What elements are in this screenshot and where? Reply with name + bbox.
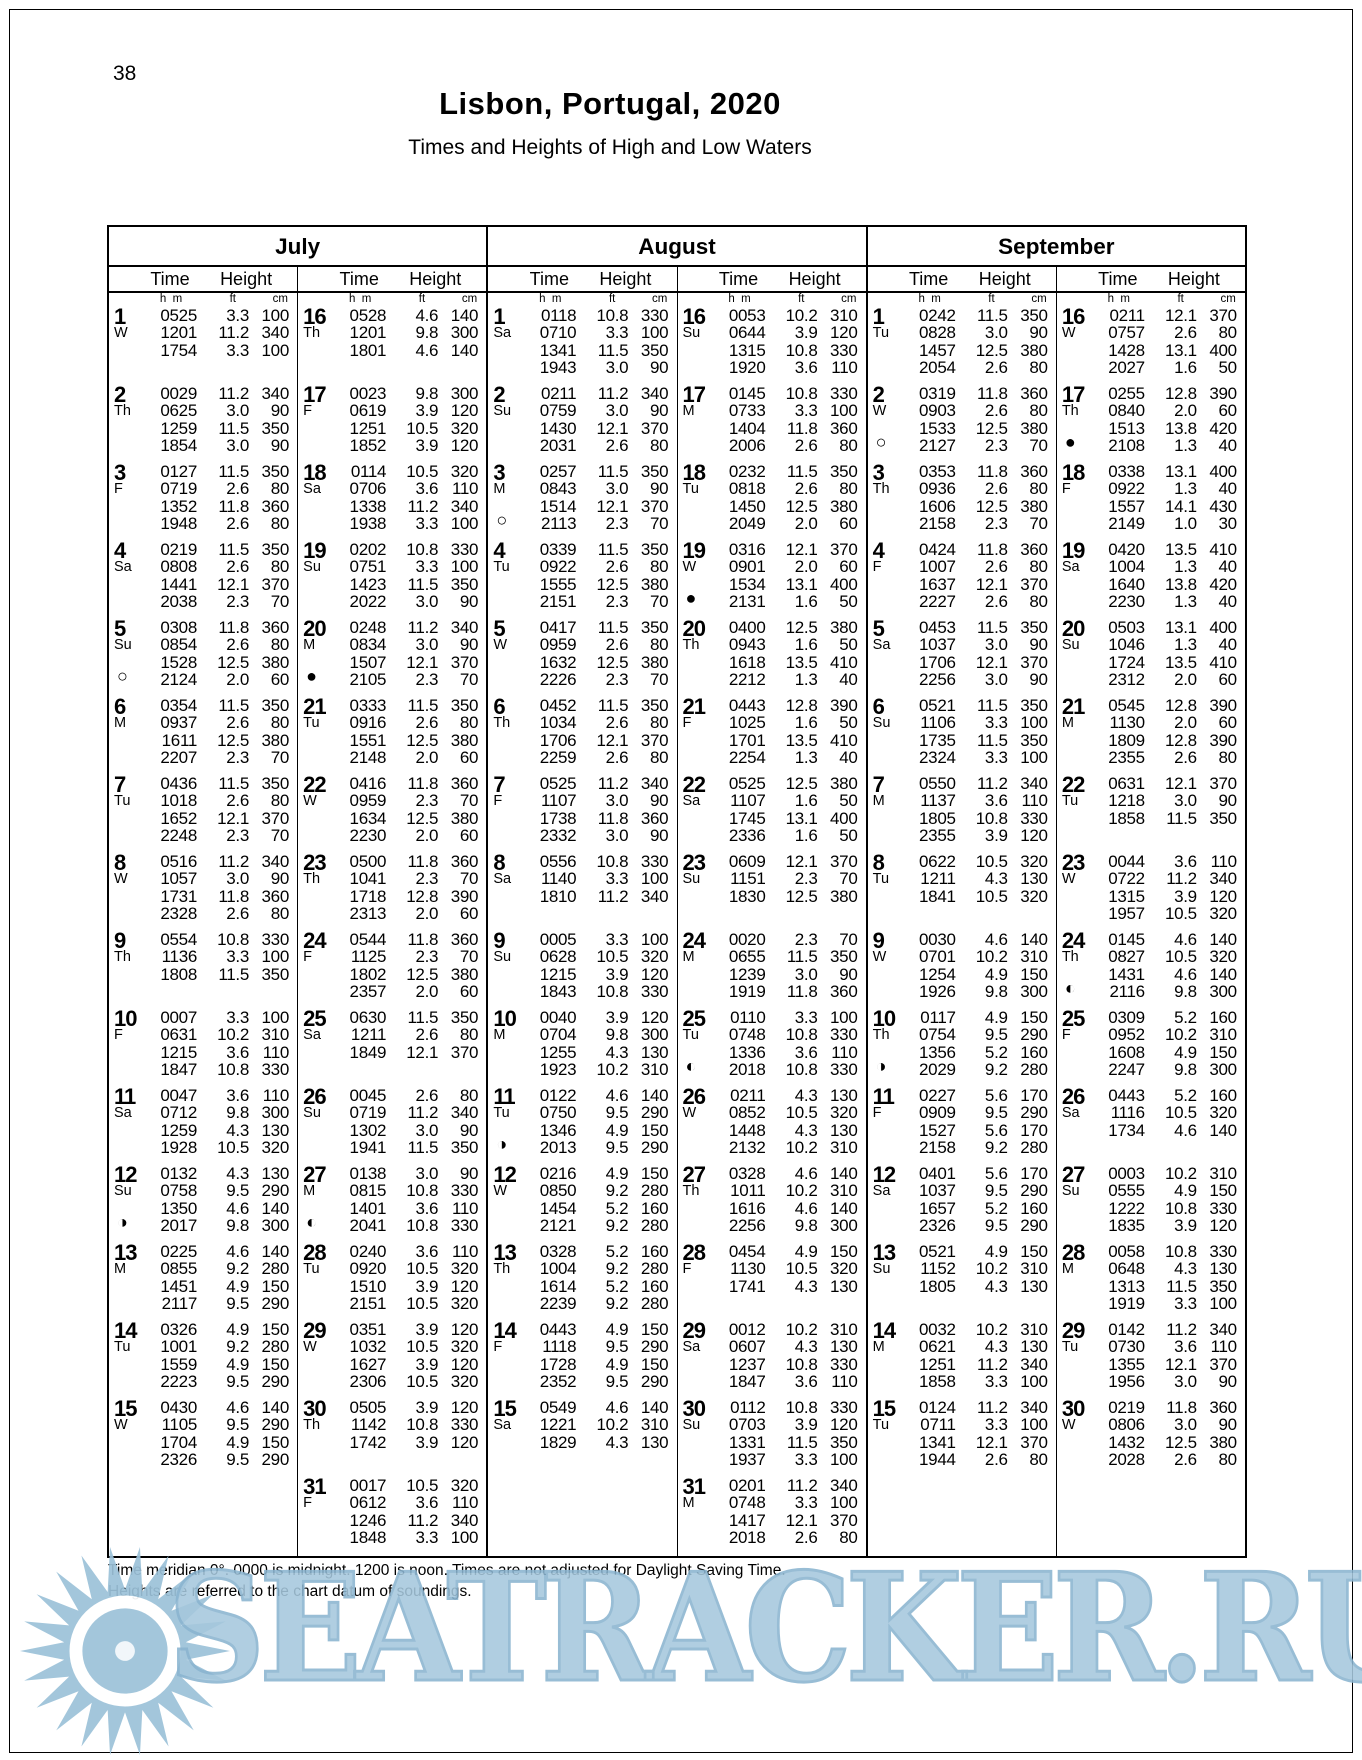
tide-row: 20542.680 [902, 359, 1056, 376]
tide-row: 020111.2340 [712, 1477, 866, 1494]
month-subcolumn: TimeHeighth mftcm1Tu024211.535008283.090… [868, 267, 1056, 1556]
tide-time: 0943 [712, 636, 768, 653]
tide-time: 1302 [332, 1122, 388, 1139]
tide-row: 23122.060 [1091, 671, 1245, 688]
tide-height-cm: 50 [818, 636, 864, 653]
tide-height-ft: 3.0 [578, 359, 628, 376]
tide-time: 0044 [1091, 853, 1147, 870]
tide-row: 09372.680 [143, 714, 297, 731]
tide-height-ft: 12.1 [958, 576, 1008, 593]
tide-time: 1025 [712, 714, 768, 731]
tide-time: 2017 [143, 1217, 199, 1234]
tide-row: 230610.5320 [332, 1373, 486, 1390]
day-number: 21 [303, 697, 333, 716]
tide-time: 2127 [902, 437, 958, 454]
tide-height-cm: 420 [1197, 576, 1243, 593]
tide-time: 1130 [1091, 714, 1147, 731]
day-label: 27M◐ [303, 1165, 333, 1199]
tide-height-ft: 12.1 [578, 732, 628, 749]
tide-height-ft: 11.2 [388, 619, 438, 636]
tide-height-cm: 370 [438, 1044, 484, 1061]
tide-height-ft: 2.0 [388, 983, 438, 1000]
tide-height-cm: 360 [818, 420, 864, 437]
day-number: 29 [1062, 1321, 1092, 1340]
tide-time: 1430 [522, 420, 578, 437]
weekday-label: Su [873, 716, 903, 731]
tide-time: 0719 [332, 1104, 388, 1121]
tide-time: 0619 [332, 402, 388, 419]
tide-height-cm: 300 [438, 385, 484, 402]
tide-height-ft: 12.8 [1147, 697, 1197, 714]
tide-row: 05214.9150 [902, 1243, 1056, 1260]
tide-height-ft: 9.2 [958, 1139, 1008, 1156]
tide-time: 2132 [712, 1139, 768, 1156]
tide-height-cm: 340 [1197, 1321, 1243, 1338]
tide-height-cm: 330 [438, 1217, 484, 1234]
tide-height-cm: 110 [1197, 1338, 1243, 1355]
tide-height-ft: 13.5 [1147, 654, 1197, 671]
day-block: 30W021911.836008063.090143212.538020282.… [1057, 1399, 1245, 1477]
tide-row: 12554.3130 [522, 1044, 676, 1061]
tide-height-ft: 12.1 [578, 498, 628, 515]
tide-row: 07549.5290 [902, 1026, 1056, 1043]
tide-height-cm: 340 [818, 1477, 864, 1494]
tide-height-ft: 4.6 [1147, 931, 1197, 948]
tide-row: 12544.9150 [902, 966, 1056, 983]
tide-height-cm: 80 [438, 714, 484, 731]
tide-row: 22569.8300 [712, 1217, 866, 1234]
tide-height-ft: 4.9 [199, 1278, 249, 1295]
tide-time: 2328 [143, 905, 199, 922]
tide-row: 011810.8330 [522, 307, 676, 324]
day-block: 7M055011.234011373.6110180510.833023553.… [868, 775, 1056, 853]
tide-time: 2357 [332, 983, 388, 1000]
day-number: 7 [114, 775, 144, 794]
tide-height-ft: 9.2 [578, 1182, 628, 1199]
tide-height-ft: 3.3 [199, 307, 249, 324]
tide-time: 1423 [332, 576, 388, 593]
tide-time: 0748 [712, 1026, 768, 1043]
tide-row: 18353.9120 [1091, 1217, 1245, 1234]
tide-height-ft: 2.3 [199, 593, 249, 610]
tide-height-cm: 360 [249, 888, 295, 905]
tide-time: 1346 [522, 1122, 578, 1139]
day-label: 21M [1062, 697, 1092, 731]
tide-time: 1221 [522, 1416, 578, 1433]
tide-height-cm: 50 [818, 792, 864, 809]
tide-row: 12594.3130 [143, 1122, 297, 1139]
day-block: 19Su020210.833007513.3100142311.53502022… [298, 541, 486, 619]
day-number: 12 [114, 1165, 144, 1184]
tide-height-ft: 12.5 [768, 775, 818, 792]
tide-height-cm: 150 [249, 1356, 295, 1373]
tide-height-ft: 4.9 [199, 1321, 249, 1338]
tide-height-cm: 400 [1197, 619, 1243, 636]
tide-row: 161813.5410 [712, 654, 866, 671]
tide-height-ft: 10.5 [388, 420, 438, 437]
tide-row: 23323.090 [522, 827, 676, 844]
day-block: 3M○025711.535008433.090151412.137021132.… [488, 463, 676, 541]
tide-height-cm: 360 [438, 931, 484, 948]
tide-rows: 04435.2160111610.532017344.6140 [1091, 1087, 1245, 1139]
tide-row: 00304.6140 [902, 931, 1056, 948]
day-number: 11 [114, 1087, 144, 1106]
tide-height-ft: 12.5 [768, 619, 818, 636]
tide-height-ft: 12.5 [958, 420, 1008, 437]
tide-row: 21219.2280 [522, 1217, 676, 1234]
tide-time: 0145 [712, 385, 768, 402]
tide-time: 1450 [712, 498, 768, 515]
tide-rows: 00073.3100063110.231012153.6110184710.83… [143, 1009, 297, 1079]
tide-height-cm: 90 [249, 402, 295, 419]
tide-height-cm: 300 [818, 1217, 864, 1234]
tide-row: 09222.680 [522, 558, 676, 575]
tide-height-cm: 80 [1008, 593, 1054, 610]
tide-height-ft: 2.6 [578, 437, 628, 454]
tide-height-cm: 130 [818, 1087, 864, 1104]
day-slots: 1Sa011810.833007103.3100134111.535019433… [488, 307, 676, 1556]
day-number: 30 [1062, 1399, 1092, 1418]
day-label: 29Sa [683, 1321, 713, 1355]
tide-height-cm: 90 [628, 359, 674, 376]
tide-height-cm: 340 [1197, 870, 1243, 887]
tide-height-cm: 100 [249, 948, 295, 965]
day-block: 15Sa05494.6140122110.231018294.3130 [488, 1399, 676, 1477]
tide-row: 074810.8330 [712, 1026, 866, 1043]
day-block: 9W00304.6140070110.231012544.915019269.8… [868, 931, 1056, 1009]
tide-time: 1201 [143, 324, 199, 341]
tide-time: 2131 [712, 593, 768, 610]
tide-height-cm: 100 [249, 342, 295, 359]
day-number: 24 [303, 931, 333, 950]
tide-height-cm: 80 [1008, 359, 1054, 376]
day-label: 16W [1062, 307, 1092, 341]
tide-height-ft: 2.6 [958, 402, 1008, 419]
day-number: 4 [493, 541, 523, 560]
tide-height-cm: 340 [1008, 775, 1054, 792]
tide-time: 0854 [143, 636, 199, 653]
tide-row: 20282.680 [1091, 1451, 1245, 1468]
units-feet: ft [768, 293, 818, 307]
tide-time: 0706 [332, 480, 388, 497]
tide-height-cm: 360 [1197, 1399, 1243, 1416]
tide-height-ft: 2.6 [578, 558, 628, 575]
tide-height-cm: 50 [1197, 359, 1243, 376]
tide-time: 1941 [332, 1139, 388, 1156]
tide-row: 16273.9120 [332, 1356, 486, 1373]
tide-height-ft: 12.1 [1147, 307, 1197, 324]
tide-height-cm: 340 [628, 775, 674, 792]
tide-time: 0922 [522, 558, 578, 575]
tide-time: 1018 [143, 792, 199, 809]
units-row: h mftcm [488, 293, 676, 307]
tide-row: 122110.2310 [522, 1416, 676, 1433]
tide-rows: 02254.614008559.228014514.915021179.5290 [143, 1243, 297, 1313]
tide-height-cm: 320 [438, 420, 484, 437]
units-hours-minutes: h m [332, 293, 388, 307]
tide-height-ft: 12.1 [768, 541, 818, 558]
tide-time: 1352 [143, 498, 199, 515]
day-label: 12Sa [873, 1165, 903, 1199]
units-hours-minutes: h m [522, 293, 578, 307]
month-name: August [488, 227, 865, 267]
tide-row: 060912.1370 [712, 853, 866, 870]
tide-height-cm: 350 [438, 1009, 484, 1026]
tide-row: 04015.6170 [902, 1165, 1056, 1182]
tide-row: 12183.090 [1091, 792, 1245, 809]
tide-height-ft: 1.3 [768, 671, 818, 688]
day-label: 3Th [873, 463, 903, 497]
tide-height-ft: 10.5 [388, 1373, 438, 1390]
footnote: Time meridian 0°. 0000 is midnight. 1200… [108, 1561, 786, 1602]
tide-row: 12019.8300 [332, 324, 486, 341]
tide-height-ft: 4.6 [199, 1399, 249, 1416]
tide-row: 08343.090 [332, 636, 486, 653]
tide-row: 01224.6140 [522, 1087, 676, 1104]
tide-row: 07333.3100 [712, 402, 866, 419]
tide-row: 08509.2280 [522, 1182, 676, 1199]
tide-time: 0545 [1091, 697, 1147, 714]
tide-row: 184110.5320 [902, 888, 1056, 905]
month-body: TimeHeighth mftcm1W05253.3100120111.2340… [109, 267, 486, 1556]
tide-height-ft: 13.1 [1147, 619, 1197, 636]
tide-time: 0936 [902, 480, 958, 497]
tide-time: 0920 [332, 1260, 388, 1277]
tide-height-cm: 280 [249, 1338, 295, 1355]
tide-height-cm: 370 [818, 853, 864, 870]
tide-time: 0353 [902, 463, 958, 480]
tide-height-cm: 350 [249, 697, 295, 714]
tide-height-cm: 330 [249, 1061, 295, 1078]
day-label: 7F [493, 775, 523, 809]
month-subcolumn: TimeHeighth mftcm1Sa011810.833007103.310… [488, 267, 676, 1556]
tide-time: 1011 [712, 1182, 768, 1199]
tide-height-cm: 60 [438, 749, 484, 766]
tide-row: 22239.5290 [143, 1373, 297, 1390]
tide-height-cm: 280 [1008, 1061, 1054, 1078]
tide-time: 1923 [522, 1061, 578, 1078]
tide-height-ft: 4.3 [958, 870, 1008, 887]
tide-height-ft: 10.8 [578, 307, 628, 324]
tide-row: 170113.5410 [712, 732, 866, 749]
tide-height-cm: 290 [249, 1182, 295, 1199]
tide-row: 204110.8330 [332, 1217, 486, 1234]
tide-row: 03513.9120 [332, 1321, 486, 1338]
tide-height-cm: 60 [438, 827, 484, 844]
tide-height-ft: 11.5 [958, 732, 1008, 749]
tide-time: 1701 [712, 732, 768, 749]
tide-height-cm: 130 [818, 1122, 864, 1139]
tide-time: 2223 [143, 1373, 199, 1390]
tide-row: 01174.9150 [902, 1009, 1056, 1026]
tide-row: 03095.2160 [1091, 1009, 1245, 1026]
tide-height-cm: 150 [628, 1321, 674, 1338]
column-headers: TimeHeight [678, 267, 866, 293]
tide-time: 1808 [143, 966, 199, 983]
tide-rows: 040012.538009431.650161813.541022121.340 [712, 619, 866, 689]
day-block: 14M003210.231006214.3130125111.234018583… [868, 1321, 1056, 1399]
tide-time: 1201 [332, 324, 388, 341]
tide-height-cm: 80 [249, 515, 295, 532]
tide-height-cm: 120 [438, 402, 484, 419]
tide-time: 1251 [902, 1356, 958, 1373]
tide-height-cm: 330 [818, 1356, 864, 1373]
tide-height-ft: 11.2 [199, 385, 249, 402]
tide-row: 00053.3100 [522, 931, 676, 948]
tide-row: 10342.680 [522, 714, 676, 731]
height-column-header: Height [960, 269, 1056, 290]
tide-height-ft: 11.8 [958, 463, 1008, 480]
tide-height-ft: 10.5 [388, 1338, 438, 1355]
day-block: 23W00443.6110072211.234013153.9120195710… [1057, 853, 1245, 931]
tide-height-cm: 320 [1008, 853, 1054, 870]
tide-height-ft: 3.9 [388, 1278, 438, 1295]
tide-height-cm: 300 [628, 1026, 674, 1043]
tide-height-ft: 3.9 [578, 1009, 628, 1026]
day-block: 22Sa052512.538011071.650174513.140023361… [678, 775, 866, 853]
tide-height-ft: 2.3 [578, 671, 628, 688]
tide-rows: 05214.9150115210.231018054.3130 [902, 1243, 1056, 1295]
day-number: 23 [683, 853, 713, 872]
tide-height-ft: 10.5 [768, 1104, 818, 1121]
tide-height-ft: 10.8 [388, 1416, 438, 1433]
tide-row: 011210.8330 [712, 1399, 866, 1416]
tide-row: 001210.2310 [712, 1321, 866, 1338]
day-label: 18Sa [303, 463, 333, 497]
weekday-label: Th [114, 950, 144, 965]
day-label: 6M [114, 697, 144, 731]
day-block: 24Th◐01454.6140082710.532014314.61402116… [1057, 931, 1245, 1009]
tide-rows: 050313.140010461.340172413.541023122.060 [1091, 619, 1245, 689]
tide-height-cm: 310 [1008, 1260, 1054, 1277]
tide-height-ft: 3.6 [1147, 853, 1197, 870]
day-label: 14M [873, 1321, 903, 1355]
tide-height-ft: 11.2 [1147, 1321, 1197, 1338]
tide-height-cm: 360 [1008, 463, 1054, 480]
tide-rows: 055610.833011403.3100181011.2340 [522, 853, 676, 905]
tide-height-ft: 10.8 [388, 1182, 438, 1199]
tide-row: 10379.5290 [902, 1182, 1056, 1199]
tide-height-cm: 40 [818, 671, 864, 688]
tide-height-ft: 2.6 [199, 905, 249, 922]
tide-height-ft: 3.6 [768, 1044, 818, 1061]
tide-time: 0005 [522, 931, 578, 948]
month-section-september: SeptemberTimeHeighth mftcm1Tu024211.5350… [866, 227, 1245, 1556]
tide-rows: 04015.617010379.529016575.216023269.5290 [902, 1165, 1056, 1235]
day-block: 15W04304.614011059.529017044.915023269.5… [109, 1399, 297, 1477]
day-number: 25 [1062, 1009, 1092, 1028]
tide-row: 21491.030 [1091, 515, 1245, 532]
tide-height-cm: 380 [628, 576, 674, 593]
day-number: 19 [303, 541, 333, 560]
tide-height-cm: 330 [818, 385, 864, 402]
tide-height-ft: 5.2 [1147, 1087, 1197, 1104]
day-label: 15W [114, 1399, 144, 1433]
tide-row: 20299.2280 [902, 1061, 1056, 1078]
tide-height-cm: 340 [1008, 1399, 1054, 1416]
tide-rows: 04434.915011189.529017284.915023529.5290 [522, 1321, 676, 1391]
tide-time: 0114 [332, 463, 388, 480]
tide-height-ft: 3.9 [388, 437, 438, 454]
tide-rows: 035411.535009372.680161112.538022072.370 [143, 697, 297, 767]
weekday-label: Th [683, 638, 713, 653]
tide-height-ft: 2.6 [199, 558, 249, 575]
tide-row: 10072.680 [902, 558, 1056, 575]
tide-time: 1735 [902, 732, 958, 749]
tide-height-cm: 350 [249, 541, 295, 558]
tide-time: 1805 [902, 810, 958, 827]
tide-row: 192810.5320 [143, 1139, 297, 1156]
tide-height-ft: 11.5 [958, 307, 1008, 324]
tide-row: 18054.3130 [902, 1278, 1056, 1295]
tide-rows: 00473.611007129.830012594.3130192810.532… [143, 1087, 297, 1157]
tide-height-cm: 80 [818, 437, 864, 454]
tide-height-cm: 410 [1197, 541, 1243, 558]
tide-time: 1341 [522, 342, 578, 359]
tide-time: 0338 [1091, 463, 1147, 480]
tide-height-cm: 160 [1008, 1044, 1054, 1061]
tide-row: 021111.2340 [522, 385, 676, 402]
tide-height-ft: 4.9 [1147, 1182, 1197, 1199]
tide-time: 1142 [332, 1416, 388, 1433]
weekday-label: Tu [303, 1262, 333, 1277]
tide-height-cm: 90 [628, 480, 674, 497]
day-number: 20 [683, 619, 713, 638]
tide-row: 155512.5380 [522, 576, 676, 593]
tide-height-ft: 10.5 [388, 1260, 438, 1277]
tide-time: 0757 [1091, 324, 1147, 341]
tide-row: 16164.6140 [712, 1200, 866, 1217]
tide-time: 0840 [1091, 402, 1147, 419]
tide-height-ft: 9.5 [958, 1104, 1008, 1121]
day-number: 18 [683, 463, 713, 482]
tide-row: 163412.5380 [332, 810, 486, 827]
tide-row: 01383.090 [332, 1165, 486, 1182]
day-number: 2 [493, 385, 523, 404]
tide-height-ft: 11.5 [768, 463, 818, 480]
tide-time: 1852 [332, 437, 388, 454]
day-block: 31M020111.234007483.3100141712.137020182… [678, 1477, 866, 1555]
tide-row: 04434.9150 [522, 1321, 676, 1338]
tide-height-cm: 290 [249, 1295, 295, 1312]
tide-rows: 021911.836008063.090143212.538020282.680 [1091, 1399, 1245, 1469]
tide-height-cm: 320 [1197, 905, 1243, 922]
tide-row: 23572.060 [332, 983, 486, 1000]
tide-height-ft: 11.2 [388, 1104, 438, 1121]
tide-time: 0032 [902, 1321, 958, 1338]
tide-height-ft: 5.6 [958, 1165, 1008, 1182]
tide-rows: 042411.836010072.680163712.137022272.680 [902, 541, 1056, 611]
tide-height-ft: 4.9 [958, 1009, 1008, 1026]
tide-time: 1513 [1091, 420, 1147, 437]
weekday-label: Tu [303, 716, 333, 731]
tide-row: 15594.9150 [143, 1356, 297, 1373]
tide-row: 05253.3100 [143, 307, 297, 324]
tide-row: 11373.6110 [902, 792, 1056, 809]
day-label: 15Tu [873, 1399, 903, 1433]
tide-row: 15103.9120 [332, 1278, 486, 1295]
tide-height-ft: 11.2 [958, 1399, 1008, 1416]
weekday-label: Tu [873, 872, 903, 887]
tide-row: 045211.5350 [522, 697, 676, 714]
tide-height-cm: 340 [1008, 1356, 1054, 1373]
tide-height-cm: 350 [628, 541, 674, 558]
tide-height-ft: 4.6 [768, 1165, 818, 1182]
tide-height-cm: 80 [1008, 1451, 1054, 1468]
tide-height-ft: 2.0 [199, 671, 249, 688]
tide-rows: 041711.535009592.680163212.538022262.370 [522, 619, 676, 689]
tide-row: 134112.1370 [902, 1434, 1056, 1451]
